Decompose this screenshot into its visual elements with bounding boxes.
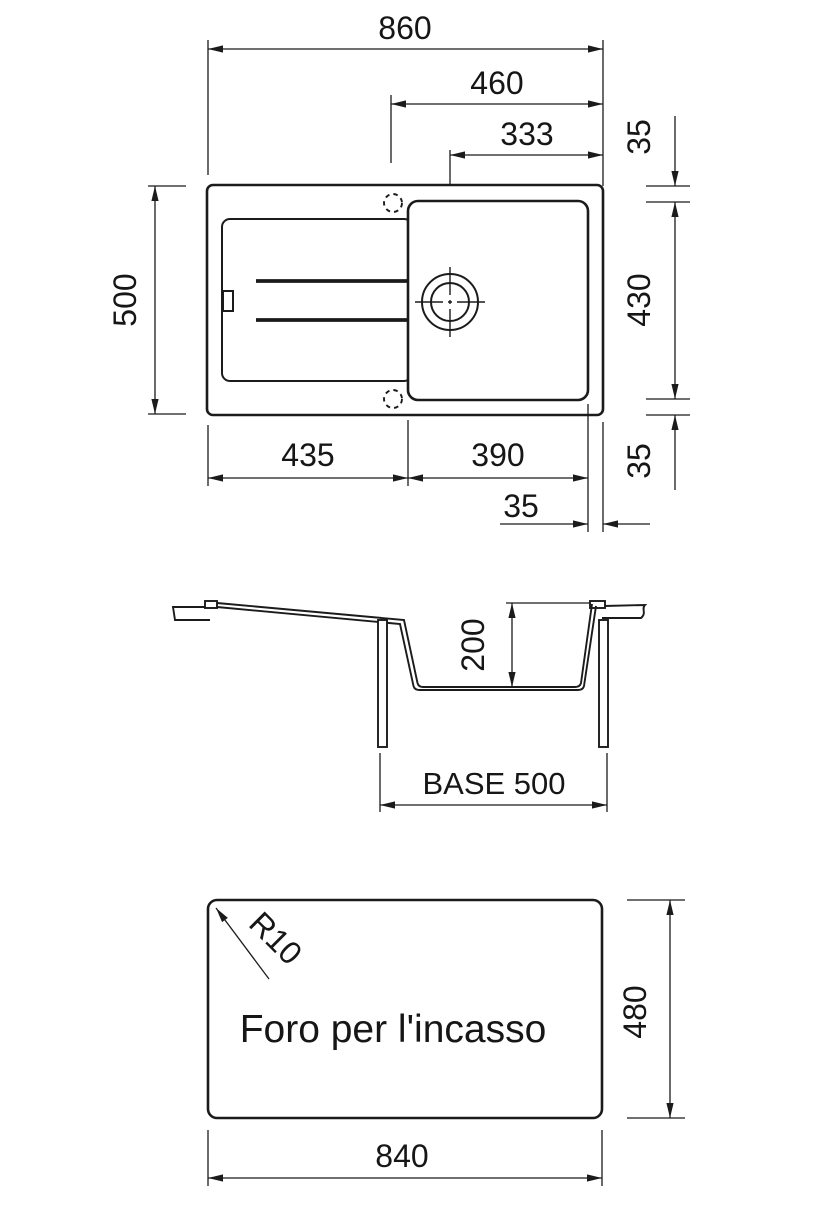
dim-840: 840 (208, 1130, 602, 1186)
tap-hole-bottom (384, 390, 402, 408)
countertop-right (602, 605, 645, 618)
cutout-caption: Foro per l'incasso (240, 1008, 547, 1051)
sink-profile-outer (217, 606, 596, 690)
technical-drawing: 860 460 333 500 35 (0, 0, 813, 1220)
bowl-outline (408, 201, 588, 400)
dim-460: 460 (391, 65, 603, 163)
dim-base-500: BASE 500 (380, 753, 607, 812)
dim-435-390: 435 390 (208, 404, 603, 532)
overflow-slot (223, 291, 233, 311)
dim-label-390: 390 (471, 437, 524, 473)
cabinet-wall-left (378, 620, 387, 747)
dim-right-chain: 35 430 35 (621, 116, 690, 490)
dim-label-860: 860 (378, 10, 431, 46)
dim-label-435: 435 (281, 437, 334, 473)
dim-500: 500 (107, 186, 186, 414)
radius-label: R10 (242, 905, 309, 972)
dim-label-333: 333 (500, 116, 553, 152)
dim-label-35-top-right: 35 (621, 119, 657, 155)
dim-label-35-bottom-right: 35 (621, 443, 657, 479)
dim-label-500: 500 (107, 273, 143, 326)
base-label: BASE 500 (422, 766, 565, 801)
dim-label-460: 460 (470, 65, 523, 101)
dim-860: 860 (208, 10, 603, 186)
dim-333: 333 (450, 116, 603, 185)
tap-hole-top (384, 194, 402, 212)
dim-label-430: 430 (621, 273, 657, 326)
countertop-left (173, 607, 213, 620)
dim-label-200: 200 (455, 618, 491, 671)
section-view: 200 BASE 500 (173, 601, 645, 812)
top-view: 860 460 333 500 35 (107, 10, 690, 532)
dim-label-480: 480 (617, 985, 653, 1038)
dim-35-offset: 35 (500, 488, 650, 524)
dim-200: 200 (455, 603, 590, 687)
dim-480: 480 (617, 900, 685, 1118)
cabinet-wall-right (599, 620, 608, 747)
dim-label-840: 840 (375, 1138, 428, 1174)
cutout-view: R10 Foro per l'incasso 480 840 (208, 900, 685, 1186)
dim-label-35-offset: 35 (503, 488, 539, 524)
drainer-outline (222, 219, 412, 381)
rim-left (205, 601, 217, 608)
